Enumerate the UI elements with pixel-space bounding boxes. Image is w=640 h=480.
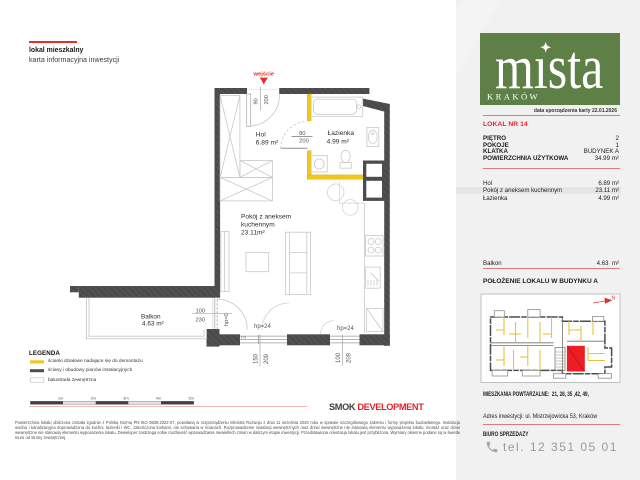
svg-text:N: N: [612, 296, 616, 302]
